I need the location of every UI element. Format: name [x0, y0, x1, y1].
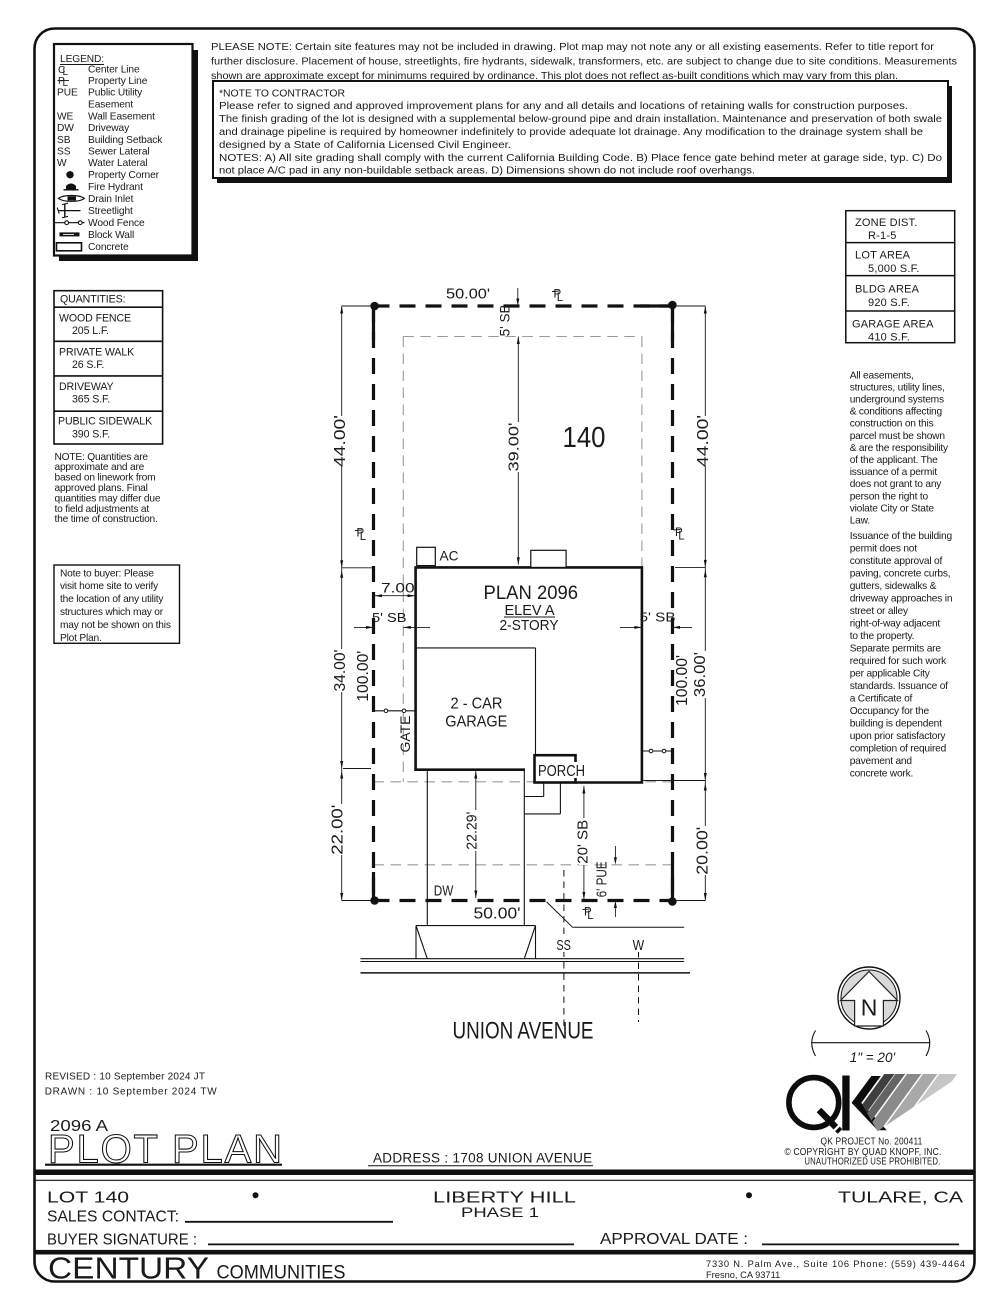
svg-text:GARAGE: GARAGE: [445, 714, 507, 731]
svg-text:ELEV A: ELEV A: [505, 603, 555, 619]
svg-text:BLDG AREA: BLDG AREA: [855, 284, 920, 296]
svg-text:Wood Fence: Wood Fence: [88, 218, 145, 229]
svg-text:1" = 20': 1" = 20': [850, 1050, 896, 1065]
svg-text:violate City or State: violate City or State: [850, 503, 935, 514]
svg-text:visit home site to verify: visit home site to verify: [60, 581, 159, 592]
svg-text:Note to buyer: Please: Note to buyer: Please: [60, 568, 154, 579]
svg-text:140: 140: [563, 422, 606, 454]
svg-text:Law.: Law.: [850, 516, 870, 527]
svg-text:SS: SS: [57, 147, 71, 158]
svg-text:the time of construction.: the time of construction.: [55, 514, 158, 525]
svg-text:Issuance of the building: Issuance of the building: [850, 531, 953, 542]
svg-text:PUE: PUE: [57, 88, 78, 99]
svg-text:W: W: [633, 937, 645, 954]
svg-text:may not be shown on this: may not be shown on this: [60, 620, 171, 631]
svg-text:Fresno, CA 93711: Fresno, CA 93711: [706, 1270, 780, 1280]
svg-text:R-1-5: R-1-5: [868, 230, 897, 242]
svg-text:construction on this: construction on this: [850, 419, 934, 430]
svg-text:UNION AVENUE: UNION AVENUE: [453, 1018, 594, 1045]
svg-text:20.00': 20.00': [695, 827, 712, 875]
svg-text:The finish grading of the lot: The finish grading of the lot is designe…: [219, 114, 943, 125]
svg-text:WOOD FENCE: WOOD FENCE: [59, 313, 131, 325]
svg-text:LOT 140: LOT 140: [47, 1189, 129, 1206]
svg-text:SALES CONTACT:: SALES CONTACT:: [47, 1208, 179, 1225]
svg-text:22.00': 22.00': [329, 805, 346, 855]
svg-text:20' SB: 20' SB: [574, 820, 591, 864]
svg-text:2 - CAR: 2 - CAR: [451, 696, 503, 713]
svg-text:PUBLIC SIDEWALK: PUBLIC SIDEWALK: [58, 416, 152, 428]
svg-text:5,000 S.F.: 5,000 S.F.: [868, 263, 920, 275]
svg-text:7.00': 7.00': [381, 581, 418, 596]
svg-text:street or alley: street or alley: [850, 606, 909, 617]
svg-text:44.00': 44.00': [332, 415, 349, 467]
svg-text:6' PUE: 6' PUE: [594, 861, 611, 897]
svg-text:concrete work.: concrete work.: [850, 769, 913, 780]
svg-text:further disclosure. Placement: further disclosure. Placement of house, …: [211, 57, 957, 68]
svg-text:paving, concrete curbs,: paving, concrete curbs,: [850, 569, 951, 580]
svg-text:& conditions affecting: & conditions affecting: [850, 407, 943, 418]
svg-text:Easement: Easement: [88, 100, 133, 111]
svg-text:underground systems: underground systems: [850, 395, 944, 406]
svg-text:approximate and are: approximate and are: [55, 462, 145, 473]
svg-text:100.00': 100.00': [674, 655, 691, 706]
svg-text:constitute approval of: constitute approval of: [850, 556, 943, 567]
svg-text:PLAN 2096: PLAN 2096: [484, 583, 579, 604]
svg-text:issuance of a permit: issuance of a permit: [850, 467, 938, 478]
svg-text:W: W: [57, 158, 67, 169]
svg-text:5' SB: 5' SB: [498, 304, 513, 336]
svg-text:Drain Inlet: Drain Inlet: [88, 194, 134, 205]
svg-text:does not grant to any: does not grant to any: [850, 479, 943, 490]
svg-text:Center Line: Center Line: [88, 65, 140, 76]
svg-text:permit does not: permit does not: [850, 544, 918, 555]
svg-text:Concrete: Concrete: [88, 242, 129, 253]
svg-text:APPROVAL DATE :: APPROVAL DATE :: [600, 1231, 748, 1248]
svg-text:L: L: [557, 292, 564, 304]
svg-text:Building Setback: Building Setback: [88, 135, 163, 146]
svg-text:parcel must be shown: parcel must be shown: [850, 431, 945, 442]
svg-text:Property Line: Property Line: [88, 76, 148, 87]
svg-text:WE: WE: [57, 112, 74, 123]
svg-text:completion of required: completion of required: [850, 744, 947, 755]
svg-text:*NOTE TO CONTRACTOR: *NOTE TO CONTRACTOR: [219, 88, 345, 99]
svg-text:PRIVATE WALK: PRIVATE WALK: [59, 347, 134, 359]
svg-text:205 L.F.: 205 L.F.: [72, 325, 109, 337]
svg-text:driveway approaches in: driveway approaches in: [850, 594, 953, 605]
svg-text:REVISED : 10 September 2024: REVISED : 10 September 2024 JT: [45, 1072, 205, 1083]
svg-text:50.00': 50.00': [474, 906, 521, 923]
svg-text:Water Lateral: Water Lateral: [88, 158, 147, 169]
svg-text:Block Wall: Block Wall: [88, 230, 134, 241]
svg-text:LOT AREA: LOT AREA: [855, 250, 911, 262]
svg-text:& are the responsibility: & are the responsibility: [850, 443, 949, 454]
svg-text:L: L: [678, 531, 685, 543]
svg-text:39.00': 39.00': [506, 422, 523, 471]
svg-text:designed by a State of Califor: designed by a State of California Licens…: [219, 140, 511, 151]
svg-text:not place A/C pad in any non-b: not place A/C pad in any non-buildable s…: [219, 166, 755, 177]
svg-text:QUANTITIES:: QUANTITIES:: [60, 294, 125, 306]
svg-text:N: N: [861, 995, 878, 1021]
svg-text:Occupancy for the: Occupancy for the: [850, 706, 930, 717]
svg-text:DW: DW: [57, 123, 74, 134]
svg-text:SB: SB: [57, 135, 71, 146]
svg-text:5' SB: 5' SB: [640, 610, 676, 625]
svg-text:per applicable City: per applicable City: [850, 669, 931, 680]
svg-text:920 S.F.: 920 S.F.: [868, 297, 910, 309]
svg-text:NOTES: A) All site grading sh: NOTES: A) All site grading shall comply …: [219, 153, 943, 164]
svg-text:L: L: [360, 531, 367, 543]
svg-text:ZONE DIST.: ZONE DIST.: [855, 217, 918, 229]
svg-text:to field adjustments at: to field adjustments at: [55, 504, 150, 515]
svg-text:22.29': 22.29': [464, 812, 481, 850]
svg-text:Please refer to signed and app: Please refer to signed and approved impr…: [219, 101, 908, 112]
svg-text:Streetlight: Streetlight: [88, 206, 133, 217]
svg-text:5' SB: 5' SB: [372, 610, 407, 625]
svg-text:based on linework from: based on linework from: [55, 473, 156, 484]
svg-text:PORCH: PORCH: [538, 763, 585, 780]
svg-text:standards. Issuance of: standards. Issuance of: [850, 681, 948, 692]
svg-text:Driveway: Driveway: [88, 123, 130, 134]
svg-text:to the property.: to the property.: [850, 631, 915, 642]
svg-text:GARAGE AREA: GARAGE AREA: [852, 319, 934, 331]
svg-text:50.00': 50.00': [446, 286, 490, 303]
svg-text:COMMUNITIES: COMMUNITIES: [217, 1262, 346, 1283]
svg-text:PLEASE NOTE: Certain site fea: PLEASE NOTE: Certain site features may n…: [211, 42, 935, 53]
svg-text:SS: SS: [556, 937, 571, 954]
svg-text:410 S.F.: 410 S.F.: [868, 332, 910, 344]
svg-text:approved plans. Final: approved plans. Final: [55, 483, 148, 494]
svg-text:Property Corner: Property Corner: [88, 170, 160, 181]
svg-text:DRIVEWAY: DRIVEWAY: [59, 381, 114, 393]
svg-text:pavement and: pavement and: [850, 756, 913, 767]
svg-text:Sewer Lateral: Sewer Lateral: [88, 147, 150, 158]
svg-text:quantities may differ due: quantities may differ due: [55, 493, 161, 504]
svg-text:Fire Hydrant: Fire Hydrant: [88, 182, 143, 193]
svg-text:7330 N. Palm Ave., Suite 106: 7330 N. Palm Ave., Suite 106 Phone: (559…: [706, 1259, 965, 1269]
svg-text:L: L: [587, 910, 594, 922]
svg-text:and drainage pipeline is requi: and drainage pipeline is required by hom…: [219, 127, 924, 138]
svg-text:required for such work: required for such work: [850, 656, 947, 667]
svg-text:AC: AC: [440, 548, 459, 564]
svg-text:structures which may or: structures which may or: [60, 607, 164, 618]
svg-text:BUYER SIGNATURE :: BUYER SIGNATURE :: [47, 1232, 197, 1249]
svg-text:right-of-way adjacent: right-of-way adjacent: [850, 619, 941, 630]
svg-text:ADDRESS : 1708 UNION AVENUE: ADDRESS : 1708 UNION AVENUE: [373, 1151, 592, 1166]
svg-text:structures, utility lines,: structures, utility lines,: [850, 382, 945, 393]
svg-text:GATE: GATE: [397, 716, 413, 753]
svg-text:gutters, sidewalks &: gutters, sidewalks &: [850, 581, 937, 592]
svg-text:Public Utility: Public Utility: [88, 88, 143, 99]
svg-text:TULARE, CA: TULARE, CA: [838, 1190, 963, 1207]
svg-text:100.00': 100.00': [355, 651, 372, 702]
svg-text:a Certificate of: a Certificate of: [850, 694, 913, 705]
svg-text:PHASE 1: PHASE 1: [461, 1204, 539, 1220]
svg-text:building is dependent: building is dependent: [850, 719, 942, 730]
svg-text:Wall Easement: Wall Easement: [88, 112, 155, 123]
svg-text:Plot Plan.: Plot Plan.: [60, 633, 102, 644]
svg-text:36.00': 36.00': [692, 652, 709, 697]
svg-text:DRAWN : 10 September 2024 T: DRAWN : 10 September 2024 TW: [45, 1087, 218, 1098]
svg-text:LEGEND:: LEGEND:: [60, 54, 104, 65]
svg-text:NOTE: Quantities are: NOTE: Quantities are: [55, 452, 149, 463]
svg-text:26 S.F.: 26 S.F.: [72, 359, 104, 371]
svg-text:34.00': 34.00': [332, 650, 349, 692]
svg-text:DW: DW: [434, 883, 454, 900]
svg-text:the location of any utility: the location of any utility: [60, 594, 164, 605]
svg-text:upon prior satisfactory: upon prior satisfactory: [850, 731, 947, 742]
svg-text:Separate permits are: Separate permits are: [850, 644, 942, 655]
svg-text:44.00': 44.00': [695, 415, 712, 467]
svg-text:365 S.F.: 365 S.F.: [72, 394, 110, 406]
svg-text:All easements,: All easements,: [850, 370, 914, 381]
svg-text:390 S.F.: 390 S.F.: [72, 429, 110, 441]
svg-text:UNAUTHORIZED USE PROHIBITED.: UNAUTHORIZED USE PROHIBITED.: [804, 1155, 940, 1167]
svg-text:CENTURY: CENTURY: [48, 1250, 209, 1285]
svg-text:person the right to: person the right to: [850, 491, 929, 502]
svg-text:of the applicant. The: of the applicant. The: [850, 455, 938, 466]
svg-text:2-STORY: 2-STORY: [500, 618, 559, 634]
